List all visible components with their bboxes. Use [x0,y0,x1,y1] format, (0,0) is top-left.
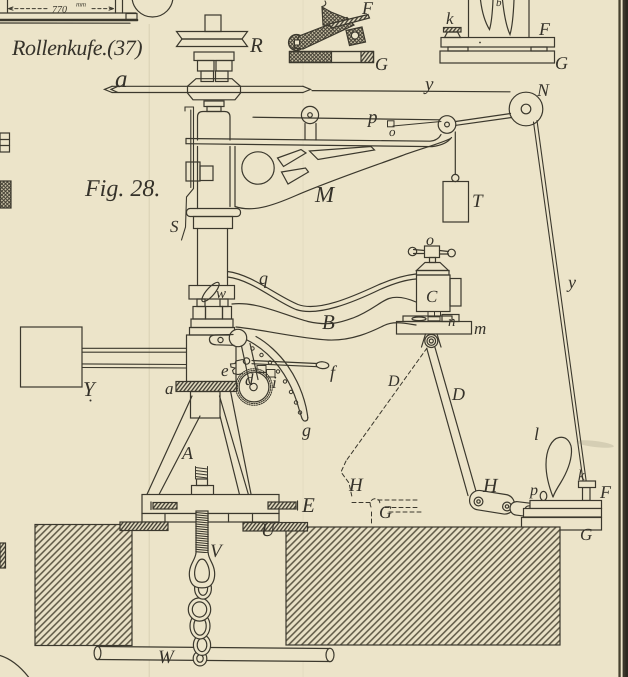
svg-text:D: D [387,373,400,390]
svg-text:Fig. 28.: Fig. 28. [84,176,160,202]
svg-text:T: T [472,191,484,212]
svg-text:G: G [580,525,592,544]
svg-text:m: m [474,319,486,338]
svg-text:F: F [599,482,612,502]
svg-text:Rollenkufe.(37): Rollenkufe.(37) [11,35,142,60]
svg-text:a: a [165,379,174,398]
svg-text:d: d [245,370,254,389]
svg-text:F: F [361,0,374,18]
svg-text:D: D [451,384,465,404]
svg-text:a: a [115,66,128,93]
svg-text:W: W [158,647,176,668]
svg-text:G: G [379,502,392,522]
svg-text:w: w [216,286,226,302]
svg-text:F: F [538,19,551,39]
svg-text:p: p [366,107,378,128]
svg-text:q: q [259,268,268,288]
svg-text:770: 770 [52,5,67,16]
svg-text:i: i [272,373,277,392]
svg-text:e: e [221,361,229,380]
svg-text:N: N [536,80,550,100]
svg-text:y: y [423,74,434,95]
svg-text:S: S [170,217,179,236]
svg-text:g: g [302,420,311,440]
svg-text:C: C [426,287,438,306]
svg-text:mm: mm [76,1,86,9]
svg-text:H: H [348,475,364,496]
svg-text:l: l [534,424,539,444]
svg-text:E: E [301,493,315,517]
svg-text:A: A [181,443,194,463]
svg-text:M: M [314,182,336,207]
svg-text:k: k [446,9,454,28]
svg-text:G: G [555,53,568,73]
svg-text:b: b [496,0,502,9]
svg-text:p: p [529,482,538,499]
svg-text:H: H [482,475,499,497]
svg-text:B: B [322,310,335,334]
svg-text:U: U [261,520,276,541]
svg-text:k: k [578,468,585,484]
svg-text:y: y [566,272,576,292]
svg-text:o: o [389,124,396,139]
svg-text:G: G [375,54,388,74]
svg-text:R: R [249,33,263,57]
